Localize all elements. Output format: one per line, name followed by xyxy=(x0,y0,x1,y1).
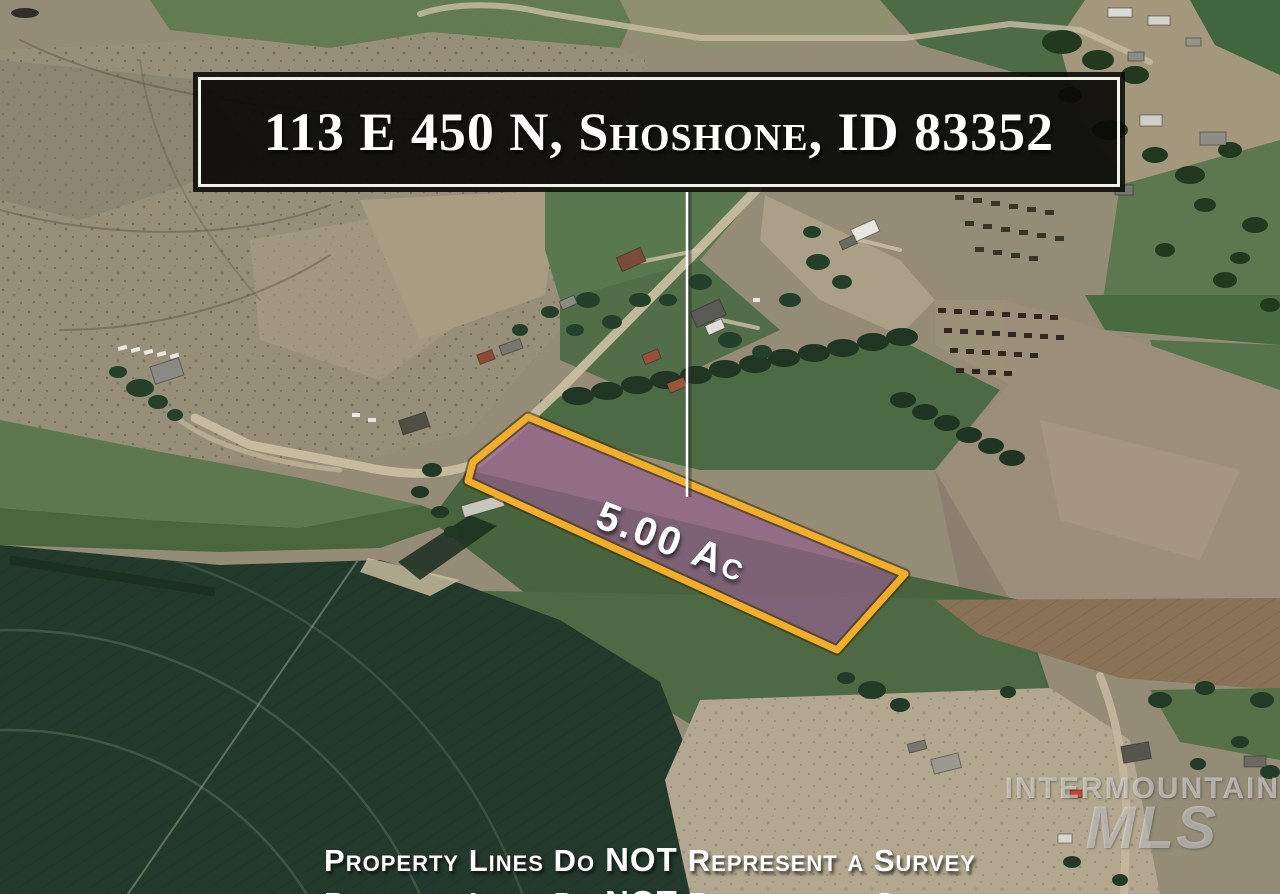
address-banner: 113 E 450 N, Shoshone, ID 83352 xyxy=(198,77,1120,187)
disclaimer-text: Property Lines Do xyxy=(324,886,595,894)
disclaimer-line-1: Property Lines DoNOTRepresent a Survey xyxy=(324,841,976,879)
property-address: 113 E 450 N, Shoshone, ID 83352 xyxy=(264,101,1054,163)
parcel-pointer-line xyxy=(687,192,689,497)
disclaimer-line-2-cut-off: Property Lines DoNOTRepresent a Survey xyxy=(324,884,976,894)
disclaimer-not-emphasis: NOT xyxy=(605,841,678,878)
aerial-property-listing-image: 113 E 450 N, Shoshone, ID 83352 5.00 Ac … xyxy=(0,0,1280,894)
disclaimer-text: Property Lines Do xyxy=(324,843,595,878)
disclaimer-text: Represent a Survey xyxy=(688,843,976,878)
disclaimer-not-emphasis: NOT xyxy=(605,884,678,894)
disclaimer-text: Represent a Survey xyxy=(688,886,976,894)
